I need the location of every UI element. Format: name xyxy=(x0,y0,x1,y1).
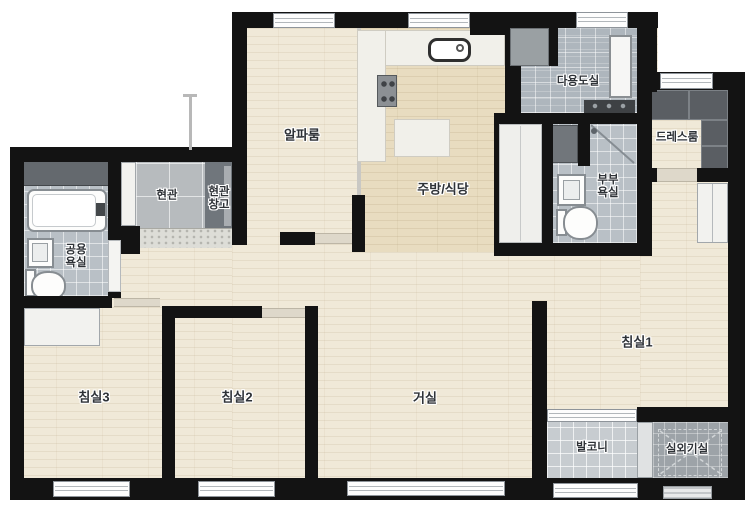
window xyxy=(553,483,638,498)
bedroom1-closet-divider xyxy=(712,184,713,242)
label-bedroom2: 침실2 xyxy=(221,391,252,406)
floorplan-canvas: 알파룸 주방/식당 다용도실 드레스룸 부부욕실 현관 현관창고 공용욕실 침실… xyxy=(0,0,753,512)
wall xyxy=(10,147,233,162)
wall xyxy=(494,243,652,256)
label-bedroom3: 침실3 xyxy=(78,391,109,406)
dressroom-closet-top xyxy=(651,90,728,120)
wall xyxy=(232,12,247,245)
wall xyxy=(305,306,318,480)
label-common-bath: 공용욕실 xyxy=(65,244,86,270)
window xyxy=(408,13,470,28)
label-alpha-room: 알파룸 xyxy=(284,129,320,144)
wall xyxy=(549,12,558,66)
window xyxy=(53,481,130,497)
alpha-room-door-threshold xyxy=(315,233,352,244)
master-bath-cabinet xyxy=(552,125,578,163)
utility-cabinet xyxy=(510,28,549,66)
dressroom-door-opening xyxy=(657,168,697,182)
window xyxy=(347,481,505,496)
wall xyxy=(637,407,729,422)
label-entrance-storage: 현관창고 xyxy=(208,186,229,212)
label-balcony: 발코니 xyxy=(576,442,608,455)
bathtub-faucet xyxy=(96,203,105,216)
wall xyxy=(494,124,499,243)
label-kitchen-dining: 주방/식당 xyxy=(417,183,468,198)
utility-range-counter xyxy=(584,100,635,113)
balcony-window xyxy=(547,409,637,422)
kitchen-sink xyxy=(428,38,471,62)
common-bath-sink-basin xyxy=(32,243,48,262)
label-utility-room: 다용도실 xyxy=(557,76,599,89)
wall xyxy=(470,12,506,35)
bedroom2-door-threshold xyxy=(262,308,305,318)
kitchen-cooktop xyxy=(377,75,397,107)
label-master-bath: 부부욕실 xyxy=(597,174,618,200)
bath-storage-slab xyxy=(24,162,108,186)
label-outdoor-unit: 실외기실 xyxy=(666,444,708,457)
pantry-closet-divider xyxy=(520,126,521,241)
kitchen-faucet xyxy=(456,44,464,52)
utility-washer xyxy=(609,35,632,98)
master-bath-toilet-bowl xyxy=(563,206,598,240)
wall xyxy=(162,306,175,480)
common-bath-door xyxy=(108,240,121,292)
wall xyxy=(494,113,645,124)
label-bedroom1: 침실1 xyxy=(621,336,652,351)
plan-line-artifact xyxy=(189,97,192,150)
wall xyxy=(352,195,365,252)
wall xyxy=(280,232,315,245)
outdoor-unit-vent xyxy=(663,486,712,499)
window xyxy=(576,12,628,28)
dressroom-closet-right xyxy=(701,120,728,172)
master-bath-sink-basin xyxy=(563,180,580,200)
window xyxy=(660,73,713,89)
wall xyxy=(10,296,112,308)
window xyxy=(273,13,335,28)
label-living-room: 거실 xyxy=(413,392,437,407)
wall xyxy=(10,147,24,500)
wall xyxy=(542,122,553,253)
wall xyxy=(162,306,262,318)
entrance-step-strip xyxy=(136,228,232,248)
window xyxy=(198,481,275,497)
kitchen-island xyxy=(394,119,450,157)
bedroom3-door-threshold xyxy=(114,298,160,307)
wall xyxy=(532,301,547,480)
bedroom3-desk xyxy=(24,308,100,346)
balcony-outdoor-door xyxy=(637,422,653,478)
label-entrance: 현관 xyxy=(156,190,177,203)
bathtub-inner xyxy=(32,194,96,227)
label-dress-room: 드레스룸 xyxy=(656,132,698,145)
wall xyxy=(728,72,745,500)
wall xyxy=(578,120,590,166)
entrance-closet xyxy=(121,162,136,226)
